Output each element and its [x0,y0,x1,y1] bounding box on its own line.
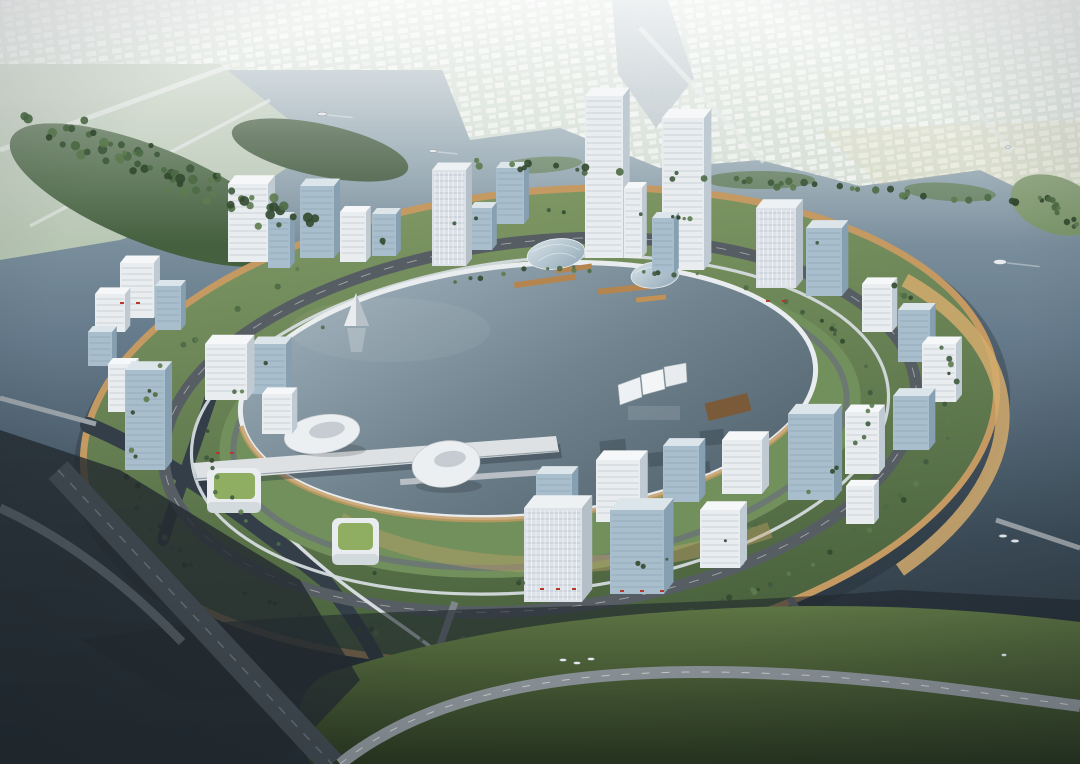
rendering-canvas [0,0,1080,764]
vignette [0,0,1080,764]
aerial-render [0,0,1080,764]
